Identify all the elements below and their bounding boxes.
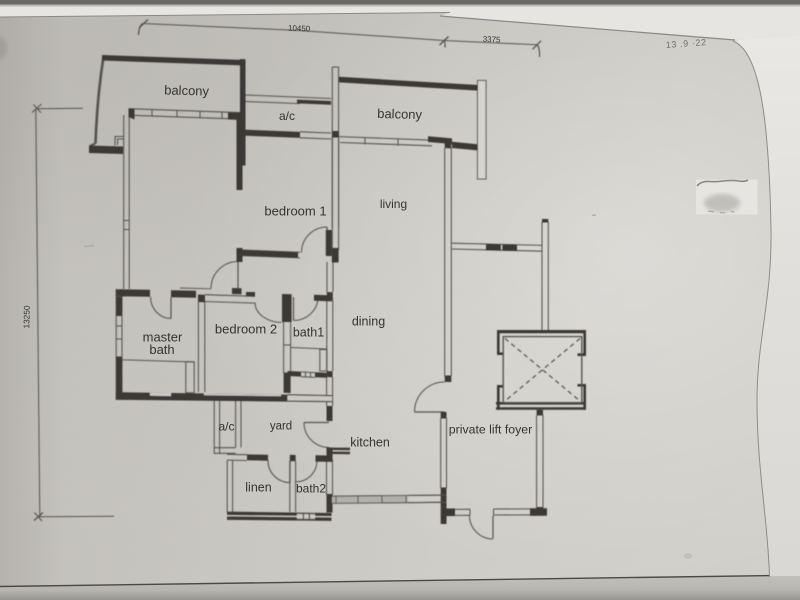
svg-text:balcony: balcony xyxy=(164,82,210,98)
svg-text:a/c: a/c xyxy=(279,109,295,123)
svg-text:balcony: balcony xyxy=(377,106,423,122)
svg-text:kitchen: kitchen xyxy=(350,436,390,450)
svg-text:bath: bath xyxy=(149,342,174,357)
svg-text:private lift foyer: private lift foyer xyxy=(449,423,532,437)
svg-text:dining: dining xyxy=(352,315,385,329)
svg-text:linen: linen xyxy=(245,481,271,495)
svg-text:bath1: bath1 xyxy=(293,326,324,340)
svg-text:13250: 13250 xyxy=(21,305,31,329)
svg-text:living: living xyxy=(380,197,407,211)
svg-text:yard: yard xyxy=(270,421,292,433)
svg-text:3375: 3375 xyxy=(483,35,502,45)
svg-text:bedroom 1: bedroom 1 xyxy=(264,204,326,219)
svg-text:bedroom 2: bedroom 2 xyxy=(215,322,277,337)
svg-text:10450: 10450 xyxy=(288,24,311,34)
svg-text:bath2: bath2 xyxy=(296,482,326,496)
svg-text:a/c: a/c xyxy=(218,420,234,434)
